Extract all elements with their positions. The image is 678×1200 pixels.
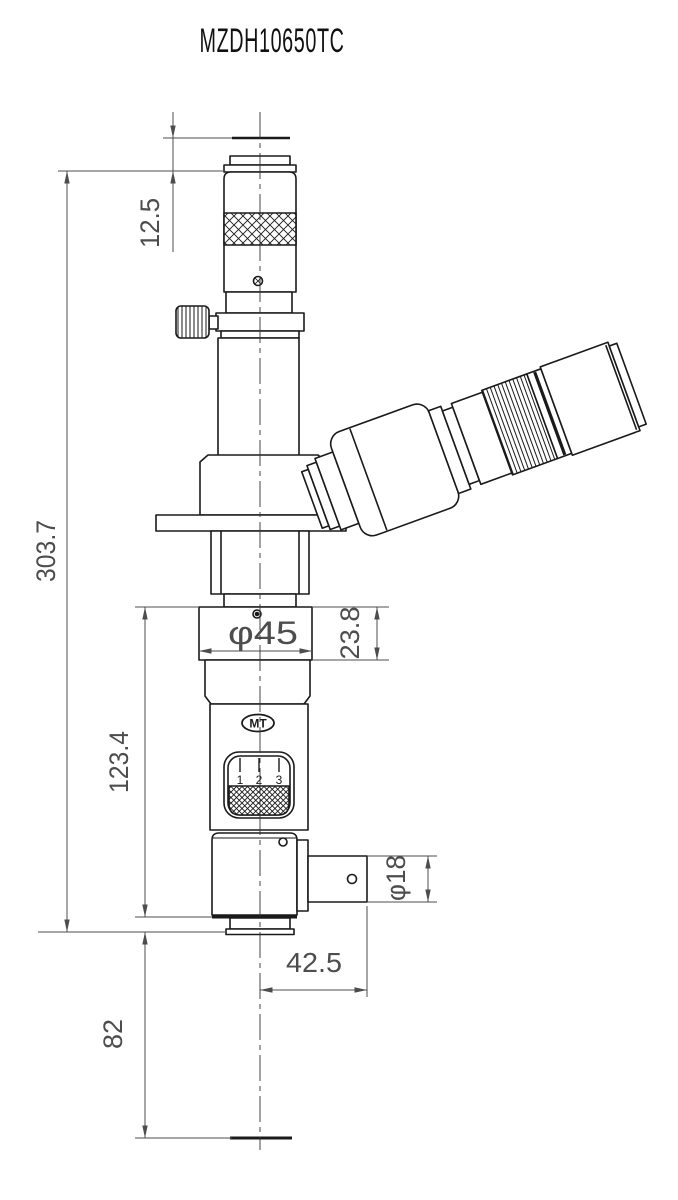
eyepiece-neck — [226, 292, 292, 313]
port-flange — [297, 840, 308, 911]
svg-text:123.4: 123.4 — [104, 731, 134, 793]
dial-number-3: 3 — [276, 773, 283, 787]
dim-working-distance: 82 — [98, 932, 148, 1138]
dial-number-2: 2 — [256, 773, 263, 787]
svg-text:φ45: φ45 — [228, 615, 298, 651]
dial-knurl — [229, 786, 289, 815]
eyepiece-tube — [218, 338, 299, 456]
block-screw — [279, 838, 287, 846]
svg-text:φ18: φ18 — [381, 855, 411, 901]
port-hole — [348, 875, 357, 884]
svg-text:23.8: 23.8 — [335, 607, 365, 660]
dim-mount-height: 23.8 — [335, 607, 380, 661]
dim-port-length: 42.5 — [260, 947, 367, 993]
drawing-title: MZDH10650TC — [200, 22, 345, 60]
lower-block — [212, 833, 367, 917]
dim-lower-body-height: 123.4 — [104, 607, 148, 917]
lock-knob — [176, 306, 209, 338]
zoom-dial: 1 2 3 — [224, 752, 294, 818]
knob-shaft — [209, 316, 218, 329]
technical-drawing-page: MZDH10650TC — [0, 0, 678, 1200]
dim-overall-height: 303.7 — [31, 171, 70, 932]
svg-text:303.7: 303.7 — [31, 520, 61, 582]
angled-eyepiece-tube — [293, 332, 650, 552]
svg-text:82: 82 — [98, 1019, 128, 1049]
brand-logo: MT — [242, 715, 274, 732]
svg-text:12.5: 12.5 — [135, 198, 165, 248]
dim-port-diameter: φ18 — [381, 855, 431, 902]
svg-text:42.5: 42.5 — [286, 947, 342, 978]
dial-number-1: 1 — [237, 773, 244, 787]
taper-ring — [205, 660, 310, 704]
brand-logo-text: MT — [249, 717, 267, 731]
side-port-arm — [308, 856, 367, 902]
dim-eyepoint-height: 12.5 — [135, 112, 176, 252]
eyepiece — [224, 172, 296, 292]
microscope-dimension-drawing: MZDH10650TC — [0, 0, 678, 1200]
